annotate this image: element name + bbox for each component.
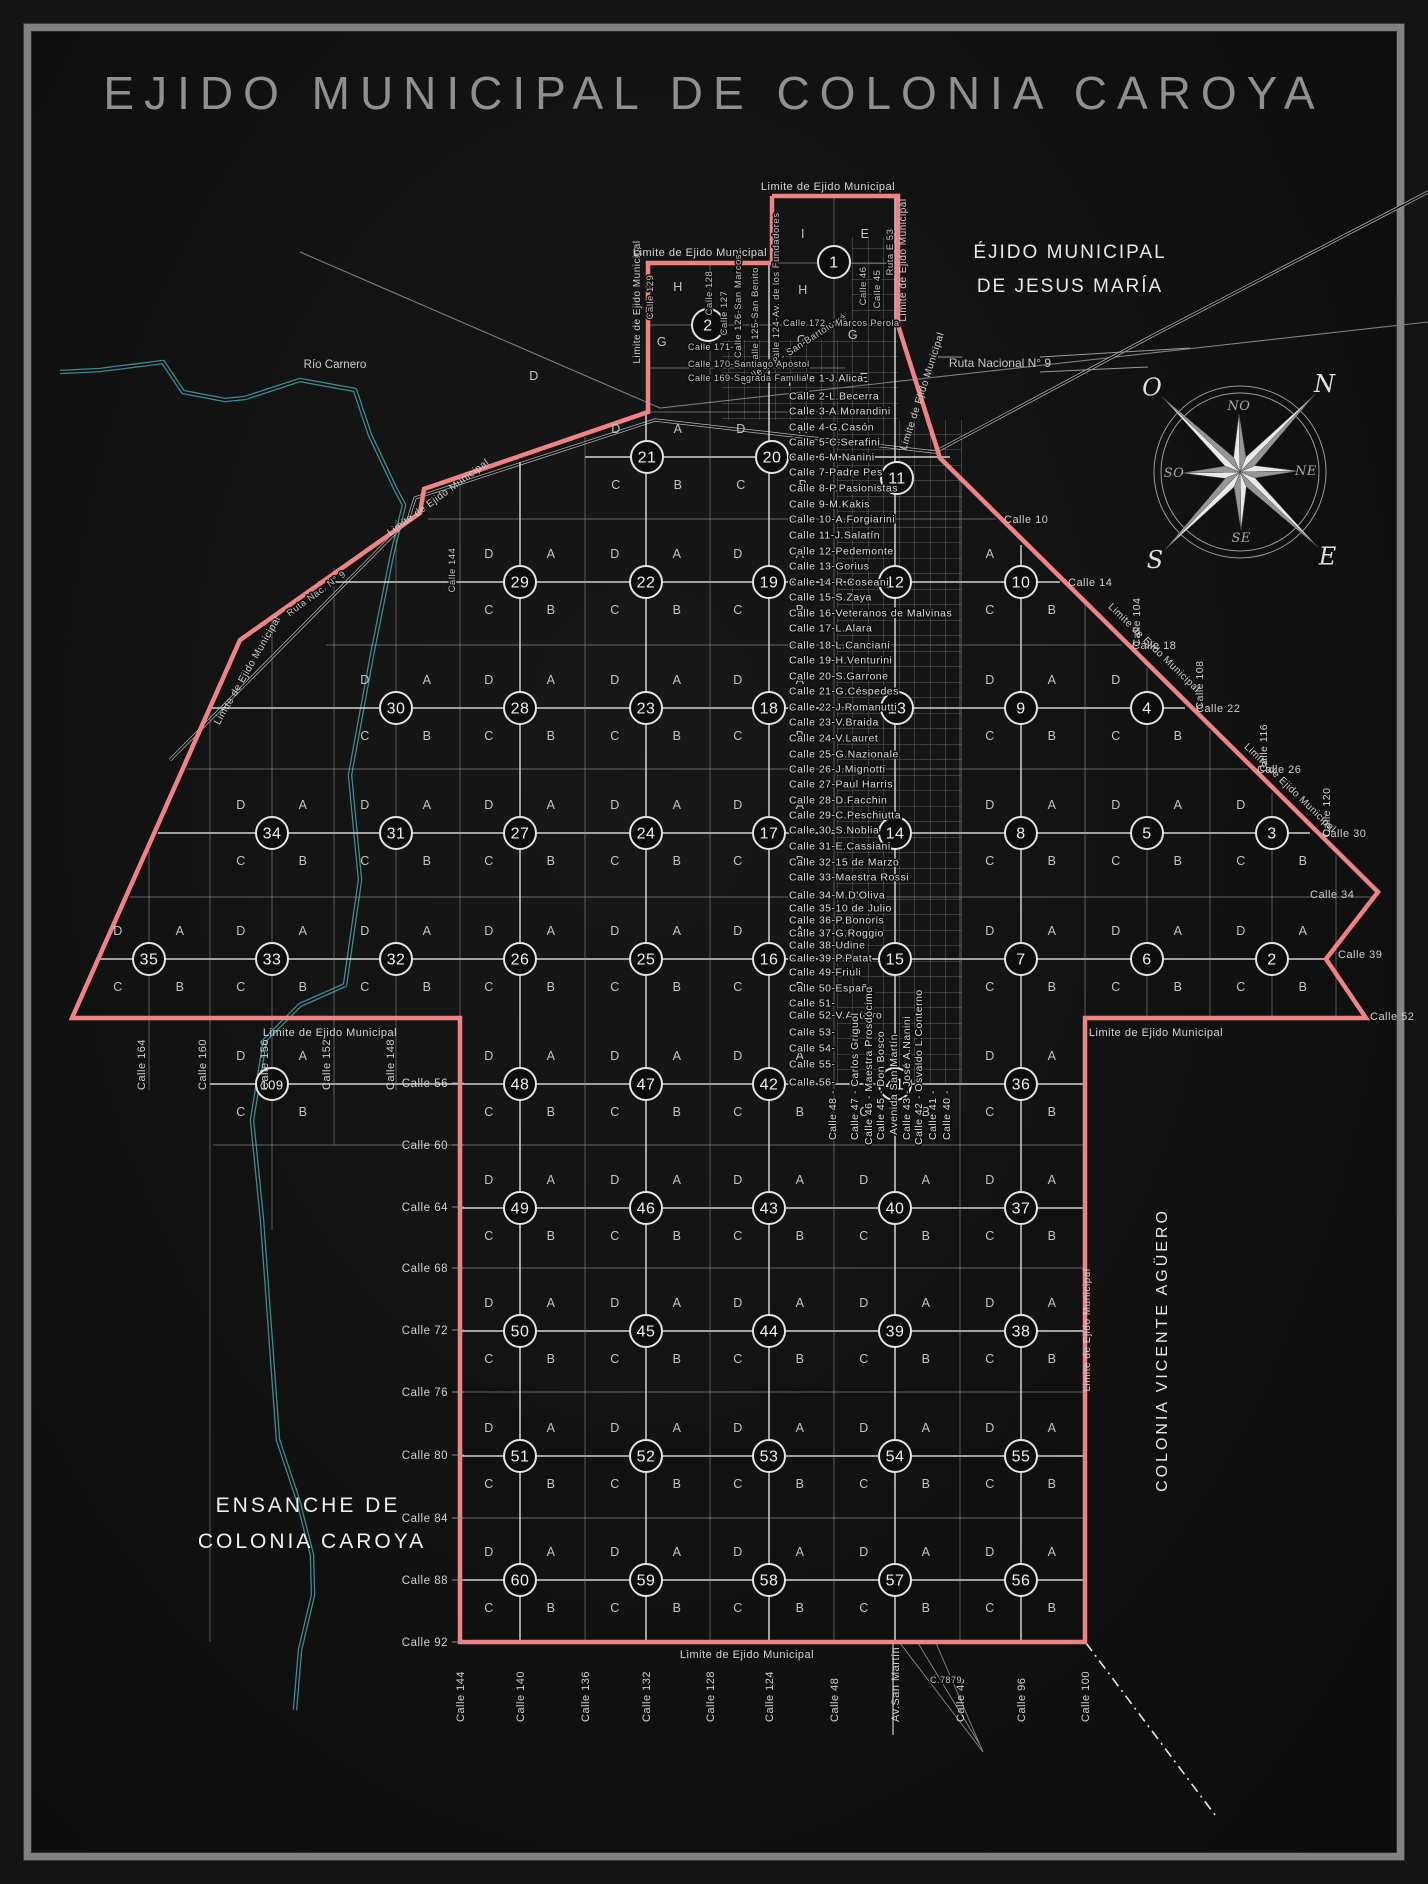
limite-label: Limite de Ejido Municipal bbox=[1089, 1027, 1223, 1039]
row-street-label: Calle 14 bbox=[1068, 577, 1112, 589]
block-quadrant-letter: B bbox=[1048, 1352, 1057, 1366]
block-number: 5 bbox=[1142, 826, 1151, 843]
block-number: 30 bbox=[387, 701, 406, 718]
block-number: 6 bbox=[1142, 952, 1151, 969]
block-quadrant-letter: A bbox=[423, 924, 432, 938]
block-quadrant-letter: A bbox=[673, 1173, 682, 1187]
block-number: 49 bbox=[511, 1201, 530, 1218]
block-number: 2 bbox=[1267, 952, 1276, 969]
block-quadrant-letter: D bbox=[236, 1049, 246, 1063]
avenue-name-label: Calle 40 - bbox=[941, 1090, 953, 1140]
row-street-label: Calle 10 bbox=[1004, 514, 1048, 526]
block-quadrant-letter: A bbox=[1048, 1421, 1057, 1435]
block-quadrant-letter: A bbox=[1048, 673, 1057, 687]
block-quadrant-letter: D bbox=[859, 1296, 869, 1310]
block-quadrant-letter: A bbox=[922, 1421, 931, 1435]
block-number: 21 bbox=[638, 450, 657, 467]
street-name-label: Calle 2-L.Becerra bbox=[789, 391, 879, 403]
block-quadrant-letter: D bbox=[610, 547, 620, 561]
block-quadrant-letter: D bbox=[236, 798, 246, 812]
block-quadrant-letter: A bbox=[673, 547, 682, 561]
row-street-label: Calle 56 bbox=[402, 1078, 448, 1090]
block-quadrant-letter: C bbox=[484, 729, 494, 743]
block-quadrant-letter: D bbox=[985, 798, 995, 812]
block-quadrant-letter: C bbox=[484, 1477, 494, 1491]
block-quadrant-letter: D bbox=[484, 1545, 494, 1559]
block-quadrant-letter: B bbox=[922, 1352, 931, 1366]
row-street-label: Calle 68 bbox=[402, 1263, 448, 1275]
compass-ring-label: SE bbox=[1231, 531, 1250, 546]
block-quadrant-letter: D bbox=[1236, 924, 1246, 938]
block-quadrant-letter: B bbox=[1048, 603, 1057, 617]
block-quadrant-letter: D bbox=[859, 1421, 869, 1435]
block-quadrant-letter: A bbox=[1174, 924, 1183, 938]
block-quadrant-letter: A bbox=[796, 1545, 805, 1559]
map-sheet: { "title": "EJIDO MUNICIPAL DE COLONIA C… bbox=[0, 0, 1428, 1884]
block-quadrant-letter: C bbox=[610, 980, 620, 994]
minor-street-label: Calle 128 bbox=[704, 271, 715, 316]
minor-street-label: Ruta E 53 bbox=[885, 229, 896, 276]
block-quadrant-letter: B bbox=[299, 854, 308, 868]
block-number: 37 bbox=[1012, 1201, 1031, 1218]
block-quadrant-letter: A bbox=[1048, 798, 1057, 812]
block-quadrant-letter: C bbox=[859, 1229, 869, 1243]
block-quadrant-letter: B bbox=[547, 1352, 556, 1366]
block-quadrant-letter: B bbox=[1048, 854, 1057, 868]
limite-label: Limite de Ejido Municipal bbox=[212, 615, 283, 727]
street-name-label: Calle 12-Pedemonte bbox=[789, 546, 894, 558]
block-quadrant-letter: D bbox=[360, 924, 370, 938]
block-quadrant-letter: D bbox=[611, 422, 621, 436]
block-quadrant-letter: A bbox=[673, 1296, 682, 1310]
block-quadrant-letter: B bbox=[1174, 729, 1183, 743]
block-quadrant-letter: B bbox=[922, 1229, 931, 1243]
block-quadrant-letter: B bbox=[673, 854, 682, 868]
compass-ring-label: NO bbox=[1226, 399, 1250, 414]
block-number: 59 bbox=[637, 1573, 656, 1590]
ensanche-label: COLONIA CAROYA bbox=[198, 1530, 426, 1553]
block-quadrant-letter: D bbox=[610, 1545, 620, 1559]
block-quadrant-letter: A bbox=[1048, 924, 1057, 938]
block-quadrant-letter: A bbox=[673, 798, 682, 812]
column-street-label: Calle 48 bbox=[829, 1678, 841, 1722]
column-street-label: Calle 136 bbox=[580, 1671, 592, 1722]
avenue-name-label: Calle 43 - José A.Nanini bbox=[901, 1016, 913, 1140]
column-street-label: Calle 144 bbox=[455, 1671, 467, 1722]
minor-street-label: Calle 127 bbox=[719, 291, 730, 336]
block-number: 29 bbox=[511, 575, 530, 592]
street-name-label: Calle 35-10 de Julio bbox=[789, 903, 892, 915]
block-quadrant-letter: D bbox=[113, 924, 123, 938]
block-quadrant-letter: A bbox=[547, 1049, 556, 1063]
block-quadrant-letter: C bbox=[733, 1601, 743, 1615]
block-quadrant-letter: C bbox=[859, 1601, 869, 1615]
street-name-label: Calle 26-J.Mignotti bbox=[789, 764, 885, 776]
minor-street-label: Calle 144 bbox=[447, 548, 458, 593]
block-number: 8 bbox=[1016, 826, 1025, 843]
column-street-label: Calle 100 bbox=[1080, 1671, 1092, 1722]
ensanche-label: ENSANCHE DE bbox=[216, 1494, 401, 1517]
block-quadrant-letter: H bbox=[798, 283, 808, 297]
block-number: 28 bbox=[511, 701, 530, 718]
block-quadrant-letter: C bbox=[360, 729, 370, 743]
street-name-label: Calle 25-G.Nazionale bbox=[789, 749, 899, 761]
street-name-label: Calle 51- bbox=[789, 998, 836, 1010]
block-quadrant-letter: A bbox=[1299, 924, 1308, 938]
block-quadrant-letter: A bbox=[547, 1173, 556, 1187]
row-street-label: Calle 34 bbox=[1310, 889, 1354, 901]
street-name-label: Calle 8-P.Pasionistas bbox=[789, 483, 898, 495]
block-quadrant-letter: D bbox=[985, 1173, 995, 1187]
block-quadrant-letter: D bbox=[733, 1049, 743, 1063]
block-quadrant-letter: D bbox=[736, 422, 746, 436]
block-number: 7 bbox=[1016, 952, 1025, 969]
avenue-name-label: Calle 41 - bbox=[927, 1090, 939, 1140]
block-quadrant-letter: A bbox=[1048, 1296, 1057, 1310]
block-number: 35 bbox=[140, 952, 159, 969]
block-quadrant-letter: A bbox=[796, 1173, 805, 1187]
block-number: 31 bbox=[387, 826, 406, 843]
block-quadrant-letter: B bbox=[1048, 729, 1057, 743]
block-quadrant-letter: C bbox=[733, 729, 743, 743]
street-name-label: Calle 53- bbox=[789, 1027, 836, 1039]
block-number: 19 bbox=[760, 575, 779, 592]
block-quadrant-letter: D bbox=[360, 673, 370, 687]
block-quadrant-letter: B bbox=[547, 980, 556, 994]
block-quadrant-letter: D bbox=[733, 547, 743, 561]
street-name-label: Calle 16-Veteranos de Malvinas bbox=[789, 608, 952, 620]
block-quadrant-letter: C bbox=[985, 729, 995, 743]
block-quadrant-letter: B bbox=[299, 1105, 308, 1119]
block-quadrant-letter: D bbox=[484, 1049, 494, 1063]
block-quadrant-letter: A bbox=[673, 1049, 682, 1063]
block-number: 10 bbox=[1012, 575, 1031, 592]
block-number: 17 bbox=[760, 826, 779, 843]
limite-label: Limite de Ejido Municipal bbox=[680, 1649, 814, 1661]
street-name-label: Calle 49-Friuli bbox=[789, 967, 861, 979]
block-number: 22 bbox=[637, 575, 656, 592]
block-quadrant-letter: A bbox=[423, 673, 432, 687]
block-quadrant-letter: C bbox=[736, 478, 746, 492]
compass-star bbox=[1165, 472, 1240, 550]
neighbor-ejido-label: ÉJIDO MUNICIPAL bbox=[973, 242, 1166, 263]
block-quadrant-letter: D bbox=[484, 1173, 494, 1187]
block-quadrant-letter: C bbox=[610, 1601, 620, 1615]
block-quadrant-letter: C bbox=[113, 980, 123, 994]
block-quadrant-letter: B bbox=[796, 1477, 805, 1491]
block-quadrant-letter: A bbox=[176, 924, 185, 938]
block-quadrant-letter: B bbox=[673, 1229, 682, 1243]
block-quadrant-letter: A bbox=[796, 1421, 805, 1435]
block-quadrant-letter: D bbox=[610, 1049, 620, 1063]
block-number: 42 bbox=[760, 1077, 779, 1094]
block-quadrant-letter: C bbox=[985, 1229, 995, 1243]
compass-cardinal-label: S bbox=[1147, 546, 1164, 574]
avenue-name-label: Calle 42 - Osvaldo L.Conterno bbox=[913, 989, 925, 1145]
block-quadrant-letter: C bbox=[859, 1352, 869, 1366]
block-quadrant-letter: C bbox=[484, 1352, 494, 1366]
street-name-label: Calle 23-V.Braida bbox=[789, 717, 879, 729]
block-quadrant-letter: A bbox=[1048, 1545, 1057, 1559]
block-quadrant-letter: B bbox=[1299, 854, 1308, 868]
block-quadrant-letter: A bbox=[922, 1545, 931, 1559]
block-number: 33 bbox=[263, 952, 282, 969]
block-quadrant-letter: C bbox=[611, 478, 621, 492]
block-number: 3 bbox=[1267, 826, 1276, 843]
block-quadrant-letter: D bbox=[610, 1421, 620, 1435]
block-quadrant-letter: C bbox=[985, 854, 995, 868]
block-quadrant-letter: A bbox=[1048, 1049, 1057, 1063]
avenue-name-label: Avenida San Martín bbox=[888, 1034, 900, 1135]
block-quadrant-letter: B bbox=[796, 1352, 805, 1366]
block-quadrant-letter: D bbox=[985, 1296, 995, 1310]
block-number: 32 bbox=[387, 952, 406, 969]
block-number: 9 bbox=[1016, 701, 1025, 718]
block-number: 16 bbox=[760, 952, 779, 969]
block-number: 54 bbox=[886, 1449, 905, 1466]
block-quadrant-letter: D bbox=[1111, 673, 1121, 687]
block-number: 25 bbox=[637, 952, 656, 969]
block-number: 50 bbox=[511, 1324, 530, 1341]
block-quadrant-letter: A bbox=[673, 673, 682, 687]
block-number: 58 bbox=[760, 1573, 779, 1590]
row-street-label: Calle 60 bbox=[402, 1140, 448, 1152]
block-quadrant-letter: A bbox=[547, 1296, 556, 1310]
street-name-label: Calle 39-P.Patat bbox=[789, 953, 872, 965]
compass-cardinal-label: N bbox=[1313, 370, 1336, 398]
block-quadrant-letter: C bbox=[985, 980, 995, 994]
compass-star bbox=[1240, 472, 1318, 547]
block-quadrant-letter: B bbox=[1174, 980, 1183, 994]
block-quadrant-letter: C bbox=[360, 854, 370, 868]
block-quadrant-letter: B bbox=[547, 1229, 556, 1243]
block-quadrant-letter: B bbox=[673, 729, 682, 743]
avenue-name-label: Calle 48 - bbox=[827, 1090, 839, 1140]
block-quadrant-letter: A bbox=[423, 798, 432, 812]
block-quadrant-letter: D bbox=[484, 547, 494, 561]
block-quadrant-letter: B bbox=[423, 854, 432, 868]
street-name-label: Calle 22-J.Romanutti bbox=[789, 702, 897, 714]
block-quadrant-letter: D bbox=[1236, 798, 1246, 812]
block-quadrant-letter: D bbox=[610, 798, 620, 812]
block-number: 44 bbox=[760, 1324, 779, 1341]
row-street-label: Calle 64 bbox=[402, 1202, 448, 1214]
block-quadrant-letter: A bbox=[673, 1421, 682, 1435]
street-name-label: Calle 29-C.Peschiutta bbox=[789, 810, 901, 822]
compass-cardinal-label: O bbox=[1142, 373, 1162, 401]
limite-label: Limite de Ejido Municipal bbox=[633, 247, 767, 259]
block-quadrant-letter: D bbox=[985, 1049, 995, 1063]
block-quadrant-letter: I bbox=[801, 227, 805, 241]
block-number: 56 bbox=[1012, 1573, 1031, 1590]
railway-dashdot-line bbox=[1086, 1643, 1215, 1815]
row-street-label: Calle 72 bbox=[402, 1325, 448, 1337]
street-name-label: Calle 6-M.Nanini bbox=[789, 452, 875, 464]
block-quadrant-letter: D bbox=[985, 924, 995, 938]
block-quadrant-letter: D bbox=[1111, 798, 1121, 812]
block-quadrant-letter: D bbox=[610, 1296, 620, 1310]
block-number: 46 bbox=[637, 1201, 656, 1218]
block-quadrant-letter: C bbox=[610, 1352, 620, 1366]
block-quadrant-letter: B bbox=[1174, 854, 1183, 868]
block-quadrant-letter: B bbox=[299, 980, 308, 994]
block-quadrant-letter: A bbox=[299, 924, 308, 938]
minor-street-label: Calle 45 bbox=[872, 270, 883, 309]
block-quadrant-letter: D bbox=[733, 924, 743, 938]
avenue-name-label: Calle 47 - Carlos Griguol bbox=[849, 1013, 861, 1140]
street-name-label: Calle 36-P.Bonoris bbox=[789, 915, 884, 927]
block-quadrant-letter: D bbox=[859, 1545, 869, 1559]
minor-street-label: Calle 46 bbox=[858, 267, 869, 306]
street-name-label: Calle 33-Maestra Rossi bbox=[789, 872, 909, 884]
column-street-label: Calle 140 bbox=[515, 1671, 527, 1722]
minor-street-label: Calle 170-Santiago Apóstol bbox=[688, 359, 810, 369]
block-quadrant-letter: C bbox=[985, 1352, 995, 1366]
block-quadrant-letter: C bbox=[236, 854, 246, 868]
row-street-label: Calle 39 bbox=[1338, 949, 1382, 961]
street-name-label: Calle 55- bbox=[789, 1059, 836, 1071]
ruta-nacional-9-label: Ruta Nacional N° 9 bbox=[949, 356, 1052, 370]
column-street-label: Calle 96 bbox=[1016, 1678, 1028, 1722]
avenue-name-label: Calle 46 - Maestra Prosdócimo bbox=[863, 986, 875, 1145]
block-quadrant-letter: D bbox=[610, 924, 620, 938]
block-quadrant-letter: B bbox=[176, 980, 185, 994]
street-name-label: Calle 19-H.Venturini bbox=[789, 655, 892, 667]
block-quadrant-letter: C bbox=[484, 854, 494, 868]
block-quadrant-letter: B bbox=[547, 1601, 556, 1615]
block-quadrant-letter: C bbox=[733, 1352, 743, 1366]
neighbor-ejido-label: DE JESUS MARÍA bbox=[977, 276, 1163, 297]
street-name-label: Calle 18-L.Canciani bbox=[789, 640, 890, 652]
street-name-label: Calle 20-S.Garrone bbox=[789, 671, 888, 683]
block-quadrant-letter: D bbox=[610, 673, 620, 687]
block-quadrant-letter: D bbox=[484, 1421, 494, 1435]
block-quadrant-letter: B bbox=[796, 1601, 805, 1615]
minor-street-label: C.7879 bbox=[930, 1675, 962, 1685]
compass-ring-label: NE bbox=[1294, 464, 1317, 479]
block-number: 34 bbox=[263, 826, 282, 843]
street-name-label: Calle 28-D.Facchin bbox=[789, 795, 887, 807]
street-name-label: Calle 56- bbox=[789, 1077, 836, 1089]
block-quadrant-letter: C bbox=[610, 603, 620, 617]
row-street-label: Calle 80 bbox=[402, 1450, 448, 1462]
street-name-label: Calle 4-G.Casón bbox=[789, 422, 874, 434]
street-name-label: Calle 9-M.Kakis bbox=[789, 499, 870, 511]
limite-label: Limite de Ejido Municipal bbox=[761, 181, 895, 193]
map-canvas: IEHDACBDACBDACBDACBDACBACBDACBDACBDACBDA… bbox=[0, 0, 1428, 1884]
block-number: 40 bbox=[886, 1201, 905, 1218]
block-quadrant-letter: C bbox=[484, 980, 494, 994]
rio-carnero-label: Río Carnero bbox=[304, 359, 367, 371]
block-quadrant-letter: B bbox=[547, 603, 556, 617]
block-quadrant-letter: B bbox=[673, 1352, 682, 1366]
block-quadrant-letter: G bbox=[657, 335, 667, 349]
avenue-name-label: Calle 45 - Don Bosco bbox=[875, 1031, 887, 1140]
block-number: 20 bbox=[763, 450, 782, 467]
row-street-label: Calle 76 bbox=[402, 1387, 448, 1399]
airstrip-wedge bbox=[918, 1643, 980, 1745]
street-name-label: Calle 54- bbox=[789, 1043, 836, 1055]
block-quadrant-letter: B bbox=[673, 1105, 682, 1119]
block-quadrant-letter: D bbox=[733, 673, 743, 687]
block-quadrant-letter: G bbox=[848, 328, 858, 342]
block-quadrant-letter: A bbox=[547, 673, 556, 687]
block-quadrant-letter: C bbox=[859, 1477, 869, 1491]
street-name-label: Calle 13-Gorius bbox=[789, 561, 869, 573]
block-quadrant-letter: B bbox=[922, 1601, 931, 1615]
block-quadrant-letter: A bbox=[796, 1296, 805, 1310]
block-quadrant-letter: C bbox=[360, 980, 370, 994]
street-name-label: Calle 17-L.Alara bbox=[789, 623, 872, 635]
minor-street-label: Calle 171- bbox=[688, 342, 734, 352]
block-quadrant-letter: C bbox=[733, 1229, 743, 1243]
compass-ring-label: SO bbox=[1164, 466, 1185, 481]
block-quadrant-letter: C bbox=[610, 1477, 620, 1491]
region-labels: ÉJIDO MUNICIPAL DE JESUS MARÍA ENSANCHE … bbox=[198, 242, 1190, 1553]
block-number: 2 bbox=[703, 318, 712, 335]
street-name-label: Calle 7-Padre Pes bbox=[789, 467, 883, 479]
block-number: 36 bbox=[1012, 1077, 1031, 1094]
block-number: 45 bbox=[637, 1324, 656, 1341]
block-quadrant-letter: C bbox=[484, 1229, 494, 1243]
street-name-label: Calle 32-15 de Marzo bbox=[789, 857, 899, 869]
airstrip-wedge bbox=[900, 1643, 983, 1752]
block-quadrant-letter: C bbox=[985, 1105, 995, 1119]
block-quadrant-letter: C bbox=[733, 603, 743, 617]
block-quadrant-letter: B bbox=[547, 1477, 556, 1491]
block-quadrant-letter: B bbox=[673, 603, 682, 617]
block-quadrant-letter: D bbox=[610, 1173, 620, 1187]
block-quadrant-letter: D bbox=[1111, 924, 1121, 938]
column-street-label: Calle 128 bbox=[705, 1671, 717, 1722]
block-quadrant-letter: H bbox=[673, 280, 683, 294]
block-quadrant-letter: B bbox=[796, 1105, 805, 1119]
block-quadrant-letter: B bbox=[547, 729, 556, 743]
block-quadrant-letter: A bbox=[299, 1049, 308, 1063]
block-quadrant-letter: A bbox=[986, 547, 995, 561]
block-quadrant-letter: C bbox=[610, 854, 620, 868]
row-street-label: Calle 92 bbox=[402, 1637, 448, 1649]
street-name-label: Calle 11-J.Salatín bbox=[789, 530, 880, 542]
block-quadrant-letter: A bbox=[547, 798, 556, 812]
block-number: 23 bbox=[637, 701, 656, 718]
row-street-label: Calle 88 bbox=[402, 1575, 448, 1587]
column-street-label: Calle 156 bbox=[259, 1039, 271, 1090]
block-quadrant-letter: A bbox=[547, 1421, 556, 1435]
block-number: 48 bbox=[511, 1077, 530, 1094]
block-quadrant-letter: C bbox=[733, 980, 743, 994]
block-quadrant-letter: C bbox=[733, 854, 743, 868]
block-quadrant-letter: A bbox=[673, 924, 682, 938]
block-quadrant-letter: A bbox=[1048, 1173, 1057, 1187]
block-quadrant-letter: C bbox=[985, 603, 995, 617]
row-street-label: Calle 84 bbox=[402, 1513, 448, 1525]
column-street-label: Av.San Martín bbox=[890, 1647, 902, 1722]
block-quadrant-letter: B bbox=[423, 729, 432, 743]
block-quadrant-letter: B bbox=[1048, 1601, 1057, 1615]
block-quadrant-letter: C bbox=[985, 1601, 995, 1615]
block-quadrant-letter: C bbox=[610, 1229, 620, 1243]
block-quadrant-letter: A bbox=[673, 1545, 682, 1559]
minor-street-label: Calle 125-San Benito bbox=[750, 267, 761, 367]
block-quadrant-letter: A bbox=[299, 798, 308, 812]
minor-street-label: Calle 124-Av. de los Fundadores bbox=[771, 213, 782, 366]
block-number: 51 bbox=[511, 1449, 530, 1466]
street-name-label: Calle 34-M.D'Oliva bbox=[789, 890, 885, 902]
compass-cardinal-label: E bbox=[1318, 543, 1337, 571]
street-name-label: Calle 27-Paul Harris bbox=[789, 779, 893, 791]
colonia-vicente-aguero-label: COLONIA VICENTE AGÜERO bbox=[1153, 1208, 1171, 1492]
